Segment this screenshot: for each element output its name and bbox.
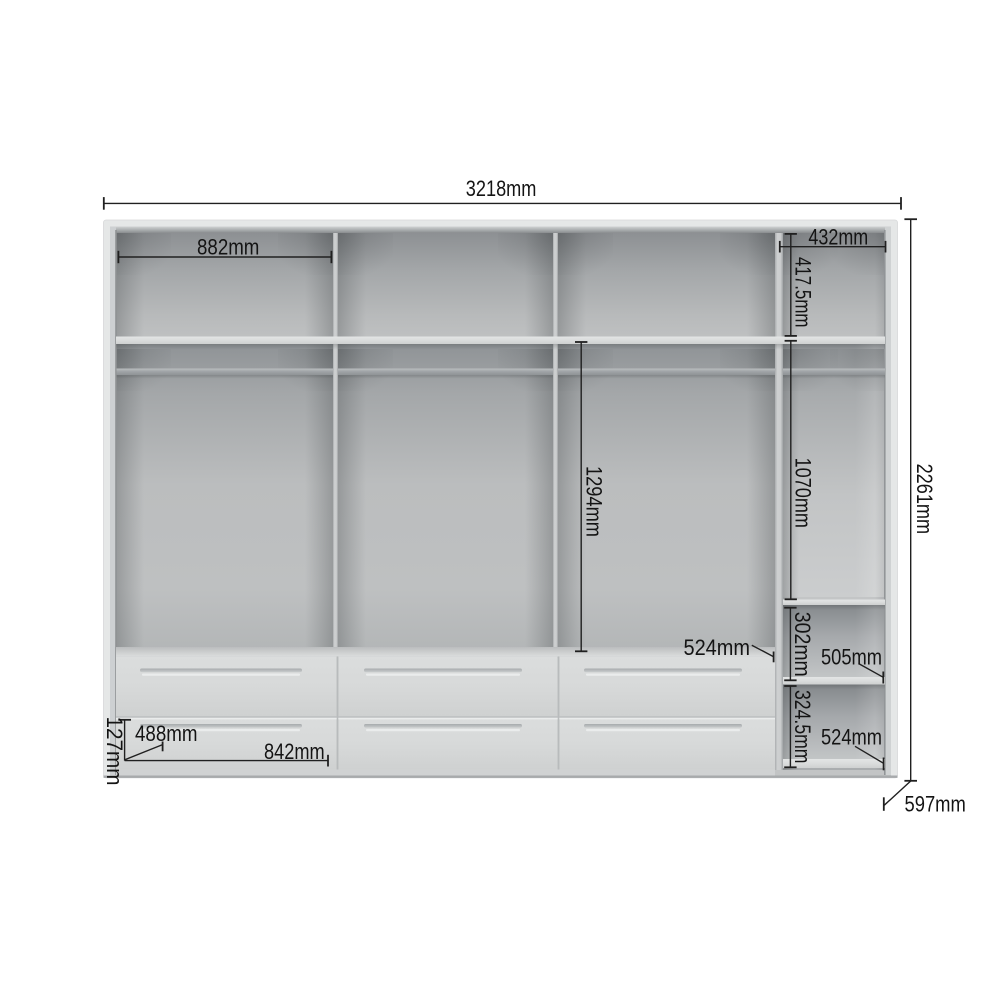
svg-text:1294mm: 1294mm: [581, 466, 606, 537]
svg-text:127mm: 127mm: [102, 717, 127, 786]
svg-text:417.5mm: 417.5mm: [790, 257, 815, 328]
svg-text:524mm: 524mm: [684, 635, 751, 660]
svg-text:432mm: 432mm: [808, 225, 868, 250]
svg-text:882mm: 882mm: [197, 235, 259, 260]
svg-text:488mm: 488mm: [135, 721, 198, 746]
svg-text:1070mm: 1070mm: [790, 458, 815, 528]
svg-text:505mm: 505mm: [821, 644, 882, 669]
svg-text:842mm: 842mm: [264, 739, 325, 764]
svg-text:2261mm: 2261mm: [912, 464, 937, 534]
svg-text:3218mm: 3218mm: [466, 176, 537, 201]
svg-text:597mm: 597mm: [905, 791, 966, 816]
svg-text:324.5mm: 324.5mm: [790, 690, 815, 764]
svg-text:524mm: 524mm: [821, 724, 882, 749]
svg-text:302mm: 302mm: [790, 612, 815, 677]
